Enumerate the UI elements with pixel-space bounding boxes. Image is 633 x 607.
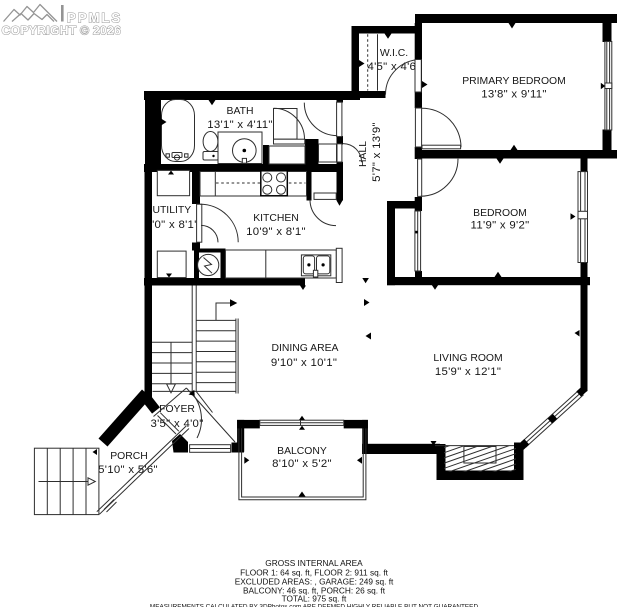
svg-text:5'0" x 8'1": 5'0" x 8'1" [145, 219, 198, 231]
svg-text:10'9" x 8'1": 10'9" x 8'1" [246, 226, 306, 238]
svg-text:KITCHEN: KITCHEN [253, 213, 299, 224]
svg-text:PORCH: PORCH [110, 451, 148, 462]
svg-text:DINING AREA: DINING AREA [272, 343, 339, 354]
svg-text:MEASUREMENTS CALCULATED BY 3DP: MEASUREMENTS CALCULATED BY 3DPhotos.com … [150, 603, 479, 607]
svg-text:FOYER: FOYER [159, 404, 195, 415]
svg-text:W.I.C.: W.I.C. [380, 48, 408, 59]
svg-text:BALCONY: BALCONY [277, 446, 327, 457]
svg-text:BEDROOM: BEDROOM [473, 208, 527, 219]
svg-text:13'1" x 4'11": 13'1" x 4'11" [207, 119, 273, 131]
svg-text:3'5" x 4'0": 3'5" x 4'0" [150, 418, 203, 430]
svg-text:9'10" x 10'1": 9'10" x 10'1" [271, 357, 337, 369]
svg-text:8'10" x 5'2": 8'10" x 5'2" [272, 458, 332, 470]
svg-text:UTILITY: UTILITY [152, 205, 191, 216]
svg-text:PRIMARY BEDROOM: PRIMARY BEDROOM [462, 76, 566, 87]
svg-text:LIVING ROOM: LIVING ROOM [433, 353, 502, 364]
svg-text:5'7" x 13'9": 5'7" x 13'9" [371, 122, 383, 182]
svg-text:COPYRIGHT © 2026: COPYRIGHT © 2026 [2, 24, 122, 38]
svg-text:TOTAL: 975 sq. ft: TOTAL: 975 sq. ft [282, 594, 347, 604]
svg-text:11'9" x 9'2": 11'9" x 9'2" [471, 220, 530, 232]
svg-text:13'8" x 9'11": 13'8" x 9'11" [481, 89, 547, 101]
svg-text:5'10" x 5'6": 5'10" x 5'6" [98, 464, 158, 476]
svg-text:15'9" x 12'1": 15'9" x 12'1" [435, 366, 501, 378]
svg-text:BATH: BATH [227, 106, 254, 117]
